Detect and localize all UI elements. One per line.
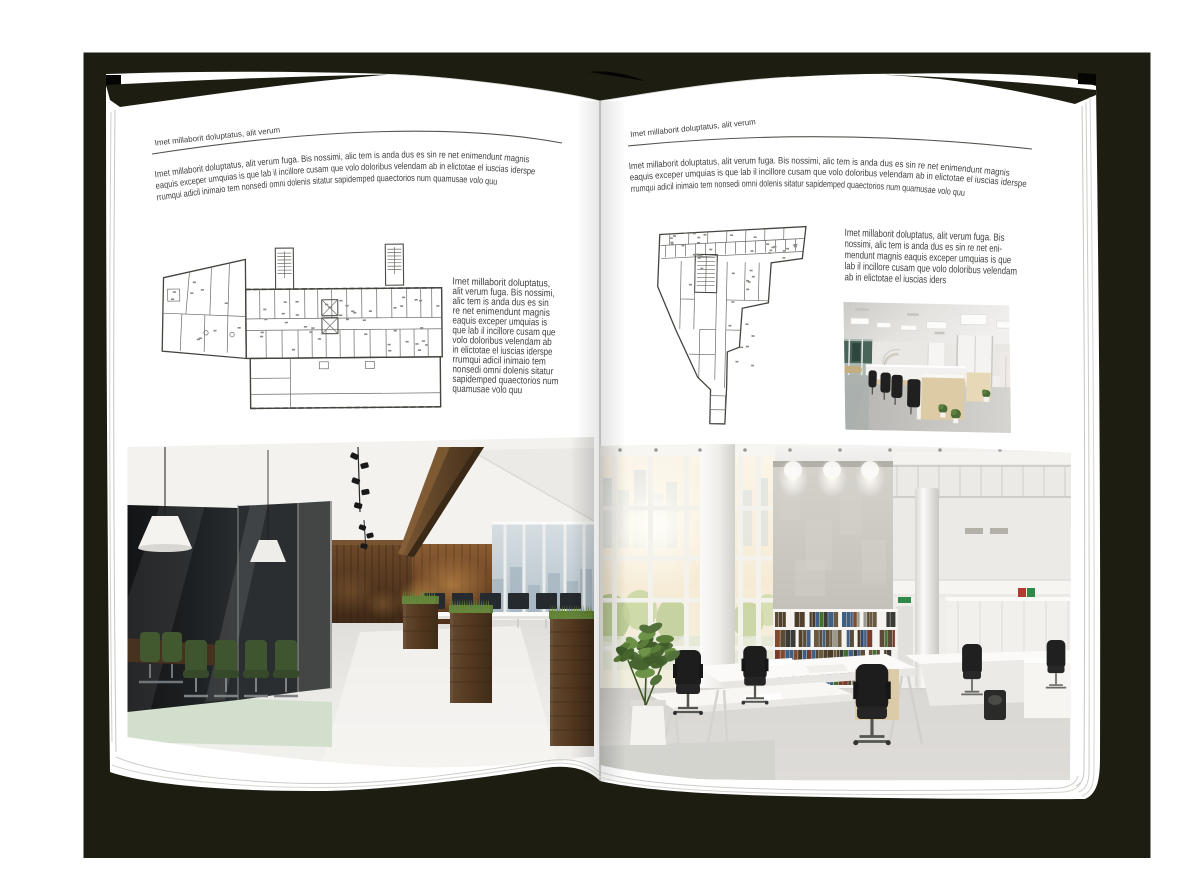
svg-text:quamusae volo quu: quamusae volo quu [452, 384, 522, 397]
